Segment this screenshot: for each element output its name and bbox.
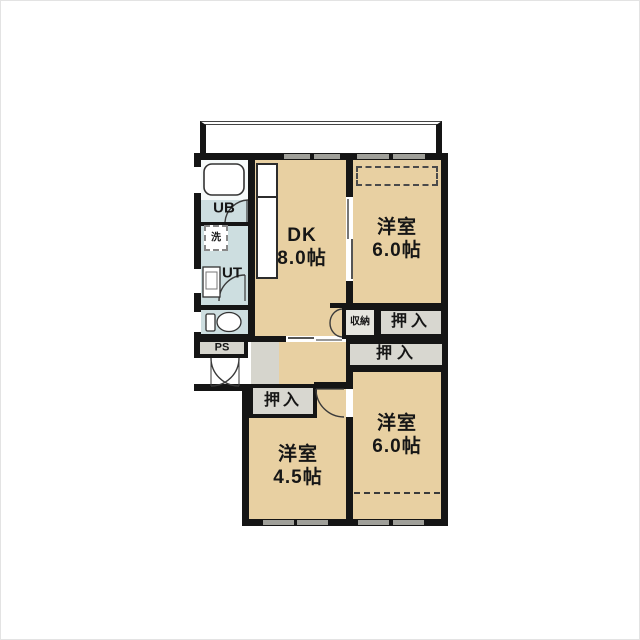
slider-panel-2 xyxy=(351,239,353,279)
label-room-se: 洋室 6.0帖 xyxy=(372,412,421,458)
genkan-strip xyxy=(251,342,279,384)
slider-panel-4 xyxy=(316,339,342,341)
label-closet-ne: 押入 xyxy=(391,313,431,331)
label-storage: 収納 xyxy=(350,316,370,328)
room-se-name: 洋室 xyxy=(372,412,421,435)
wall-laundry-toilet xyxy=(201,305,248,310)
dashed-line-se xyxy=(354,492,440,500)
window-bottom-se-1 xyxy=(358,520,389,525)
room-ne-name: 洋室 xyxy=(372,216,421,239)
balcony xyxy=(200,121,442,154)
wall-left-lower xyxy=(242,384,249,526)
closet-dashed-ne xyxy=(356,166,438,186)
floorplan-canvas: UB 洗 UT PS 収納 押入 押入 押入 DK 8.0帖 洋室 6.0帖 洋… xyxy=(0,0,640,640)
label-ps: PS xyxy=(215,342,230,355)
window-top-dk-1 xyxy=(284,154,310,159)
label-room-sw: 洋室 4.5帖 xyxy=(273,443,322,489)
wall-over-sw-door xyxy=(314,382,353,389)
kitchen-counter xyxy=(256,163,278,279)
toilet-room xyxy=(201,310,248,334)
entrance-area xyxy=(201,358,248,384)
room-sw-name: 洋室 xyxy=(273,443,322,466)
window-left-ut xyxy=(194,269,201,293)
kitchen-counter-divider xyxy=(256,196,278,198)
window-top-ne-2 xyxy=(393,154,425,159)
label-room-ne: 洋室 6.0帖 xyxy=(372,216,421,262)
bathtub-zone xyxy=(201,160,248,200)
window-bottom-se-2 xyxy=(393,520,424,525)
window-bottom-sw-1 xyxy=(263,520,294,525)
room-ne-area: 6.0帖 xyxy=(372,239,421,262)
window-top-dk-2 xyxy=(314,154,340,159)
window-bottom-sw-2 xyxy=(297,520,328,525)
slider-panel-3 xyxy=(288,337,314,339)
room-sw-area: 4.5帖 xyxy=(273,466,322,489)
entrance-door-gap xyxy=(194,358,201,384)
window-top-ne-1 xyxy=(357,154,389,159)
room-dk-area: 8.0帖 xyxy=(277,247,326,270)
room-se-area: 6.0帖 xyxy=(372,435,421,458)
label-closet-sw: 押入 xyxy=(264,392,302,410)
wall-leftcol-dk xyxy=(248,160,255,342)
se-door-gap xyxy=(346,389,353,417)
label-ub: UB xyxy=(213,199,235,216)
label-room-dk: DK 8.0帖 xyxy=(277,224,326,270)
wall-under-dk xyxy=(248,336,286,342)
hallway xyxy=(279,342,346,384)
hallway-door-area xyxy=(317,389,346,418)
window-left-bath xyxy=(194,167,201,193)
room-dk-name: DK xyxy=(277,224,326,247)
label-laundry: 洗 xyxy=(211,232,221,244)
label-closet-mid: 押入 xyxy=(376,345,418,363)
window-left-toilet xyxy=(194,312,201,332)
label-ut: UT xyxy=(222,264,242,281)
slider-panel-1 xyxy=(347,199,349,239)
